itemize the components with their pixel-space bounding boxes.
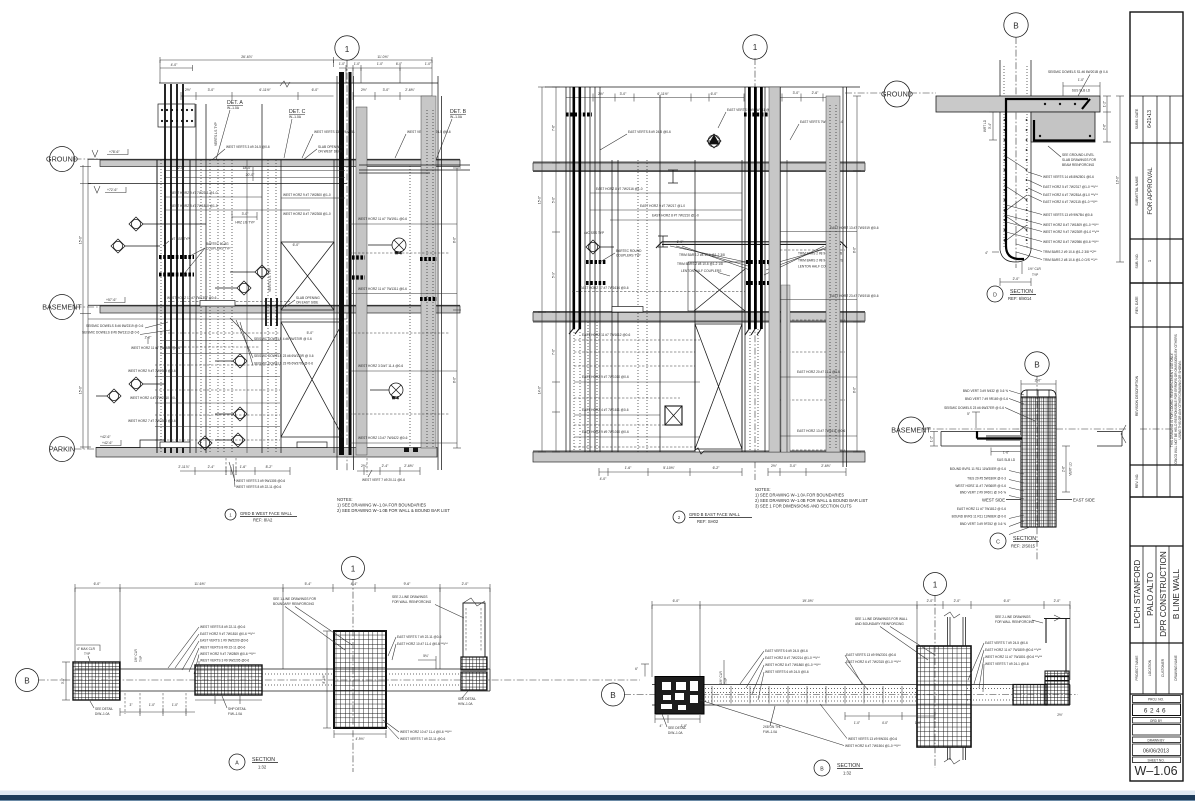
svg-text:2'-0": 2'-0" xyxy=(462,582,470,586)
svg-text:WEST HORZ 11 #7 7W1801 @0-6 *: WEST HORZ 11 #7 7W1801 @0-6 **V** xyxy=(985,655,1043,659)
svg-text:BND VERT 7 #9 9R169 @ 0-6: BND VERT 7 #9 9R169 @ 0-6 xyxy=(965,397,1008,401)
svg-text:REF: SH02: REF: SH02 xyxy=(697,519,719,524)
svg-text:WEST HORZ 11 #7 7W360R @ 0-6: WEST HORZ 11 #7 7W360R @ 0-6 xyxy=(955,484,1006,488)
svg-text:4'-4": 4'-4" xyxy=(351,582,359,586)
svg-text:BND VERT 3 #9 9/432 @ 0-6 ⅝: BND VERT 3 #9 9/432 @ 0-6 ⅝ xyxy=(963,389,1008,393)
svg-text:BARTEC ROUND: BARTEC ROUND xyxy=(616,249,642,253)
svg-text:SEE DETAIL: SEE DETAIL xyxy=(458,697,476,701)
svg-text:VERT LD: VERT LD xyxy=(1069,462,1073,476)
svg-text:7'-6": 7'-6" xyxy=(552,125,556,131)
svg-text:1'-0": 1'-0" xyxy=(854,721,860,725)
svg-text:LENTON HALF COUPLERS: LENTON HALF COUPLERS xyxy=(681,269,721,273)
svg-text:WEST VERT 7 #9 20-11 @0-6: WEST VERT 7 #9 20-11 @0-6 xyxy=(362,478,405,482)
svg-text:6•21•13: 6•21•13 xyxy=(1147,110,1153,128)
svg-text:2) SEE DRAWING W–1.0B FOR WALL: 2) SEE DRAWING W–1.0B FOR WALL & BOUND B… xyxy=(755,498,868,503)
svg-text:SEISMIC DOWELS 23 #6 6W170R @: SEISMIC DOWELS 23 #6 6W170R @ 0-6 xyxy=(254,354,314,358)
svg-text:1) SEE DRAWING W–1.0A FOR BOUN: 1) SEE DRAWING W–1.0A FOR BOUNDARIES xyxy=(337,503,426,508)
svg-text:HRZ LIS TYP: HRZ LIS TYP xyxy=(235,221,254,225)
svg-text:1'-6": 1'-6" xyxy=(240,465,248,469)
svg-text:TYP: TYP xyxy=(84,652,90,656)
svg-text:B: B xyxy=(1013,22,1019,31)
svg-text:WEST VERTS 8 #9 22-11 @0-6: WEST VERTS 8 #9 22-11 @0-6 xyxy=(236,485,281,489)
svg-text:W–1.0A: W–1.0A xyxy=(450,115,463,119)
svg-text:2) SEE DRAWING W–1.0B FOR WALL: 2) SEE DRAWING W–1.0B FOR WALL & BOUND B… xyxy=(337,508,450,513)
svg-text:TYP: TYP xyxy=(139,656,143,662)
svg-text:BND VERT 2 #9 9F601 @ 0-6 ⅝: BND VERT 2 #9 9F601 @ 0-6 ⅝ xyxy=(960,491,1007,495)
svg-text:6": 6" xyxy=(635,667,638,671)
svg-text:DRAWN BY: DRAWN BY xyxy=(1147,738,1165,742)
svg-text:2'-6⅝": 2'-6⅝" xyxy=(821,464,831,468)
svg-text:SEISMIC DOWELS 23 #6 6W3709 @: SEISMIC DOWELS 23 #6 6W3709 @ 0-6 xyxy=(254,362,313,366)
svg-text:SEE 1-LINE DRAWINGS FOR: SEE 1-LINE DRAWINGS FOR xyxy=(273,597,317,601)
svg-text:6'-11½": 6'-11½" xyxy=(259,88,271,92)
svg-text:EAST VERTS 13 #9 9W2301 @0-6: EAST VERTS 13 #9 9W2301 @0-6 xyxy=(846,653,896,657)
svg-text:WEST HORZ 10 #7 11-4 @0-6 **V: WEST HORZ 10 #7 11-4 @0-6 **V** xyxy=(400,730,452,734)
svg-text:15'-0": 15'-0" xyxy=(79,236,83,244)
svg-text:SEE 2-LINE DRAWINGS: SEE 2-LINE DRAWINGS xyxy=(995,615,1030,619)
svg-text:1'-0": 1'-0" xyxy=(377,62,383,66)
svg-text:COUPLERS TYP: COUPLERS TYP xyxy=(206,247,231,251)
svg-text:EAST HORZ 11 #7 7W1812 @ 0-6: EAST HORZ 11 #7 7W1812 @ 0-6 xyxy=(957,507,1006,511)
svg-text:2'-0": 2'-0" xyxy=(1035,379,1043,383)
svg-text:WEST VERTS 8 #9 22-11 @0-6: WEST VERTS 8 #9 22-11 @0-6 xyxy=(200,646,245,650)
svg-text:SEISMIC DOWELS 8 #6 6W2319 @ 0: SEISMIC DOWELS 8 #6 6W2319 @ 0-6 xyxy=(86,324,143,328)
svg-text:EAST VERTS 1 #9 9W2209 @0-6: EAST VERTS 1 #9 9W2209 @0-6 xyxy=(200,639,249,643)
svg-text:W–4: W–4 xyxy=(395,251,402,255)
svg-text:SEISMIC DOWELS 23 #6 6W37ER @: SEISMIC DOWELS 23 #6 6W37ER @ 0-6 xyxy=(944,406,1004,410)
svg-text:14'-0": 14'-0" xyxy=(538,386,542,394)
svg-text:1'-6": 1'-6" xyxy=(681,724,687,728)
svg-text:BARTEC 60-8G: BARTEC 60-8G xyxy=(206,242,229,246)
svg-text:6'-11½": 6'-11½" xyxy=(657,92,669,96)
svg-text:WEST HORZ 17 #7 7W1307 @0-6: WEST HORZ 17 #7 7W1307 @0-6 xyxy=(167,296,217,300)
svg-text:5": 5" xyxy=(967,412,970,416)
svg-text:2'-6⅝": 2'-6⅝" xyxy=(404,464,414,468)
svg-text:6'-0": 6'-0" xyxy=(711,92,719,96)
svg-text:W–4: W–4 xyxy=(392,396,399,400)
svg-text:+78'-6": +78'-6" xyxy=(109,150,120,154)
svg-text:EAST HORZ 10 #7 11-4 @0-6 **V: EAST HORZ 10 #7 11-4 @0-6 **V** xyxy=(397,642,449,646)
svg-text:2½": 2½" xyxy=(598,92,605,96)
svg-text:WEST VERTS 14 #8 8W2801 @0-6: WEST VERTS 14 #8 8W2801 @0-6 xyxy=(1043,175,1094,179)
svg-text:9'-6": 9'-6" xyxy=(404,582,412,586)
svg-text:A: A xyxy=(235,761,239,767)
svg-text:1'-0": 1'-0" xyxy=(354,62,360,66)
svg-text:WEST HORZ 11 #7 7W3608 @0-6: WEST HORZ 11 #7 7W3608 @0-6 xyxy=(131,346,180,350)
svg-text:1: 1 xyxy=(345,45,350,54)
svg-text:SECTION: SECTION xyxy=(252,757,275,763)
svg-text:WEST VERTS 6 #9 24-5 @0-6: WEST VERTS 6 #9 24-5 @0-6 xyxy=(765,670,809,674)
svg-text:WEST HORZ 11 #7 7W1311 @0-6: WEST HORZ 11 #7 7W1311 @0-6 xyxy=(358,287,407,291)
svg-text:+42'-6": +42'-6" xyxy=(100,435,111,439)
svg-text:GROUND: GROUND xyxy=(46,155,78,164)
svg-text:TIES 29 #5 5W180R @ 0-3: TIES 29 #5 5W180R @ 0-3 xyxy=(967,477,1006,481)
svg-text:1'-0": 1'-0" xyxy=(1078,78,1084,82)
svg-text:BOUND BVR3 11 R11 11W8ER @ 0-6: BOUND BVR3 11 R11 11W8ER @ 0-6 xyxy=(952,515,1007,519)
svg-text:REV. NO.: REV. NO. xyxy=(1135,474,1139,489)
svg-text:5'-4": 5'-4" xyxy=(305,582,313,586)
svg-text:EAST HORZ 8 #7 7W2210 @1-0: EAST HORZ 8 #7 7W2210 @1-0 xyxy=(652,214,699,218)
svg-text:ORD BY: ORD BY xyxy=(1150,719,1163,723)
svg-text:BOUNDARY REINFORCING: BOUNDARY REINFORCING xyxy=(273,602,315,606)
svg-text:2'-0": 2'-0" xyxy=(954,599,962,603)
svg-text:1: 1 xyxy=(753,43,758,52)
svg-text:2⅝": 2⅝" xyxy=(361,464,368,468)
svg-text:1'-0": 1'-0" xyxy=(339,62,345,66)
svg-text:3'-0": 3'-0" xyxy=(790,464,798,468)
svg-text:TYP: TYP xyxy=(1032,273,1038,277)
svg-text:WEST HORZ 13 #7 7W1622 @0-6: WEST HORZ 13 #7 7W1622 @0-6 xyxy=(358,436,408,440)
svg-text:WEST VERTS 7 #9 22-11 @0-6: WEST VERTS 7 #9 22-11 @0-6 xyxy=(400,737,445,741)
svg-text:WEST VERTS 13 #9 9W7B4 @0-6: WEST VERTS 13 #9 9W7B4 @0-6 xyxy=(1043,213,1093,217)
svg-text:USING THIS OR ANY OTHER DRAWIN: USING THIS OR ANY OTHER DRAWING OR SHOWN… xyxy=(1178,360,1182,439)
svg-text:15'-0": 15'-0" xyxy=(538,196,542,204)
svg-text:+42'-6": +42'-6" xyxy=(102,441,113,445)
svg-text:BASEMENT: BASEMENT xyxy=(891,426,931,435)
svg-text:SUBMITTAL NAME: SUBMITTAL NAME xyxy=(1135,176,1139,206)
svg-text:WEST HORZ 11 #7 7W191L @0-6: WEST HORZ 11 #7 7W191L @0-6 xyxy=(358,217,407,221)
svg-text:B: B xyxy=(1034,361,1040,370)
svg-text:3'-4": 3'-4" xyxy=(988,123,992,129)
svg-text:F/W–1.0A: F/W–1.0A xyxy=(228,712,243,716)
svg-text:EAST HORZ 13 #7 7W1611 @0-6: EAST HORZ 13 #7 7W1611 @0-6 xyxy=(797,429,846,433)
svg-text:1'-2": 1'-2" xyxy=(930,436,934,442)
svg-text:EAST HORZ 8 #7 7W2116 @1-0: EAST HORZ 8 #7 7W2116 @1-0 xyxy=(596,187,643,191)
svg-text:18'-0": 18'-0" xyxy=(243,166,252,170)
svg-text:W–1.0A: W–1.0A xyxy=(227,106,240,110)
svg-text:2'-4": 2'-4" xyxy=(208,465,216,469)
svg-text:2'-0": 2'-0" xyxy=(145,336,153,340)
svg-text:WEST HORZ 8 #7 7W2308 @1-0: WEST HORZ 8 #7 7W2308 @1-0 xyxy=(283,212,331,216)
svg-text:WEST HORZ 9 #7 7W2800 @1-0: WEST HORZ 9 #7 7W2800 @1-0 xyxy=(283,193,331,197)
svg-text:DRAWING NAME: DRAWING NAME xyxy=(1174,655,1178,680)
svg-text:EAST VERTS 7 #9 24-5 @0-6: EAST VERTS 7 #9 24-5 @0-6 xyxy=(985,641,1028,645)
svg-text:1½" CLR: 1½" CLR xyxy=(719,670,723,684)
svg-text:4": 4" xyxy=(985,251,988,255)
svg-text:EAST VERTS 7 #9 22-11 @0-6: EAST VERTS 7 #9 22-11 @0-6 xyxy=(397,635,442,639)
svg-text:PROJ. NO.: PROJ. NO. xyxy=(1148,698,1164,702)
svg-text:SHP DETAIL: SHP DETAIL xyxy=(228,707,247,711)
svg-text:8'-0": 8'-0" xyxy=(853,247,857,253)
svg-text:WEST HORZ 9 #7 7W2309 @0-6: WEST HORZ 9 #7 7W2309 @0-6 xyxy=(128,369,176,373)
svg-text:SLAB OPENING: SLAB OPENING xyxy=(318,145,342,149)
svg-text:2'-11⅞": 2'-11⅞" xyxy=(178,465,190,469)
svg-text:13'-0": 13'-0" xyxy=(1116,176,1120,184)
svg-text:6'-0": 6'-0" xyxy=(1004,599,1012,603)
svg-text:EAST HORZ 9 #7 7W217 @1-0: EAST HORZ 9 #7 7W217 @1-0 xyxy=(640,204,685,208)
svg-text:1'-6": 1'-6" xyxy=(625,466,633,470)
svg-text:WEST HORZ 3 D/#7 11-4 @0-6: WEST HORZ 3 D/#7 11-4 @0-6 xyxy=(358,364,403,368)
svg-text:DPR CONSTRUCTION: DPR CONSTRUCTION xyxy=(1159,551,1168,637)
svg-text:TRIM BARS 2 #8 10-6 @1-2 1/8: TRIM BARS 2 #8 10-6 @1-2 1/8 xyxy=(677,262,723,266)
svg-text:1:32: 1:32 xyxy=(258,765,267,770)
svg-text:1½" CLR: 1½" CLR xyxy=(1028,267,1042,271)
svg-text:EAST HORZ 9 #9 7W1010 @0-6: EAST HORZ 9 #9 7W1010 @0-6 xyxy=(582,430,629,434)
svg-text:EAST HORZ 23 #7 7W1918 @0-6: EAST HORZ 23 #7 7W1918 @0-6 xyxy=(830,294,879,298)
svg-text:8'-1½": 8'-1½" xyxy=(322,674,326,683)
svg-text:TRIM BARS 2 #9 10-6 @1-2 3/8 *: TRIM BARS 2 #9 10-6 @1-2 3/8 **2** xyxy=(1043,250,1097,254)
svg-text:SLAB DRAWINGS FOR: SLAB DRAWINGS FOR xyxy=(1062,158,1097,162)
svg-text:EAST SIDE: EAST SIDE xyxy=(1073,498,1095,503)
svg-text:B LINE WALL: B LINE WALL xyxy=(1172,568,1181,619)
svg-text:WEST VERTS 7 #9 24-1 @0-6: WEST VERTS 7 #9 24-1 @0-6 xyxy=(985,662,1029,666)
svg-text:WEST HORZ 8 #7 7W1809 @1-0 **V: WEST HORZ 8 #7 7W1809 @1-0 **V** xyxy=(1043,223,1099,227)
svg-text:GROUND: GROUND xyxy=(881,90,913,99)
svg-text:D: D xyxy=(993,293,997,299)
svg-text:D/W–1.0A: D/W–1.0A xyxy=(95,712,110,716)
svg-text:SHEET NO.: SHEET NO. xyxy=(1147,758,1164,762)
svg-text:4'-0": 4'-0" xyxy=(600,477,608,481)
svg-text:WEST HORZ 4 #7 7W2310 @0-6: WEST HORZ 4 #7 7W2310 @0-6 xyxy=(130,396,178,400)
svg-text:EAST HORZ 9 #7 7W1810 @0-6 **: EAST HORZ 9 #7 7W1810 @0-6 **V** xyxy=(200,632,255,636)
svg-text:REVISION DESCRIPTION: REVISION DESCRIPTION xyxy=(1135,375,1139,416)
svg-text:6'-2": 6'-2" xyxy=(713,466,721,470)
svg-text:5'-0": 5'-0" xyxy=(552,197,556,203)
svg-text:EAST HORZ 11 #7 7W1612 @0-6: EAST HORZ 11 #7 7W1612 @0-6 xyxy=(582,333,631,337)
svg-text:2'-0": 2'-0" xyxy=(178,166,186,170)
svg-text:WEST HORZ 9 #7 7W2311 @1-0: WEST HORZ 9 #7 7W2311 @1-0 xyxy=(170,191,218,195)
svg-text:6'-0": 6'-0" xyxy=(673,599,681,603)
svg-text:SECTION: SECTION xyxy=(1010,289,1033,295)
svg-text:4": 4" xyxy=(660,724,663,728)
svg-text:REF: 2/S015: REF: 2/S015 xyxy=(1011,544,1036,549)
svg-text:2'-4": 2'-4" xyxy=(382,464,390,468)
svg-text:F/W–1.0A: F/W–1.0A xyxy=(763,730,778,734)
svg-text:2'-6": 2'-6" xyxy=(1062,466,1066,472)
svg-text:EAST HORZ 11 #7 7W1809 @0-6 *: EAST HORZ 11 #7 7W1809 @0-6 **V** xyxy=(985,648,1042,652)
svg-text:3'-0": 3'-0" xyxy=(620,92,628,96)
svg-text:2½": 2½" xyxy=(361,88,368,92)
svg-text:SEISMIC DOWELS 8 #6 6W1313 @ 0: SEISMIC DOWELS 8 #6 6W1313 @ 0-6 xyxy=(82,331,139,335)
svg-text:5¾": 5¾" xyxy=(423,654,429,658)
svg-text:6'-0": 6'-0" xyxy=(94,582,102,586)
svg-text:W–1.0A: W–1.0A xyxy=(289,115,302,119)
svg-text:1) SEE DRAWING W–1.0A FOR BOUN: 1) SEE DRAWING W–1.0A FOR BOUNDARIES xyxy=(755,493,844,498)
svg-text:1'-0": 1'-0" xyxy=(915,721,921,725)
svg-text:NOTES:: NOTES: xyxy=(337,497,353,502)
svg-text:06/06/2013: 06/06/2013 xyxy=(1143,749,1169,755)
svg-text:+57'-6": +57'-6" xyxy=(106,298,117,302)
svg-text:4'-0": 4'-0" xyxy=(171,63,179,67)
svg-text:SUS SLB LD: SUS SLB LD xyxy=(1072,89,1091,93)
svg-text:WEST VERTS 3 #9 24-5 @0-6: WEST VERTS 3 #9 24-5 @0-6 xyxy=(226,145,270,149)
svg-text:NOTES:: NOTES: xyxy=(755,487,771,492)
svg-text:WEST VERTS 3 #9 9W1305 @0-6: WEST VERTS 3 #9 9W1305 @0-6 xyxy=(236,479,285,483)
svg-text:GRID B WEST FACE WALL: GRID B WEST FACE WALL xyxy=(240,511,293,516)
svg-text:ON WEST DECK: ON WEST DECK xyxy=(318,150,343,154)
svg-text:5'-9": 5'-9" xyxy=(552,272,556,278)
svg-text:11'-6⅝": 11'-6⅝" xyxy=(194,582,206,586)
svg-text:EAST HORZ 5 #7 7W2317 @1-0 **V: EAST HORZ 5 #7 7W2317 @1-0 **V** xyxy=(1043,185,1098,189)
svg-text:EAST HORZ 4 #7 7W1611 @0-6: EAST HORZ 4 #7 7W1611 @0-6 xyxy=(582,408,629,412)
svg-text:WEST HORZ 7 #7 7W2300 @0-6: WEST HORZ 7 #7 7W2300 @0-6 xyxy=(128,419,176,423)
svg-text:SUB. NO.: SUB. NO. xyxy=(1135,254,1139,269)
svg-text:2'-6": 2'-6" xyxy=(1103,124,1107,130)
svg-text:WEST HORZ 6 #7 7W1504 @1-0 **: WEST HORZ 6 #7 7W1504 @1-0 **V** xyxy=(845,744,901,748)
svg-text:6'-0": 6'-0" xyxy=(293,243,301,247)
svg-text:REF: 6/8014: REF: 6/8014 xyxy=(1008,296,1032,301)
svg-text:6'-0": 6'-0" xyxy=(396,62,402,66)
svg-text:B: B xyxy=(24,677,30,686)
svg-text:2½": 2½" xyxy=(771,464,778,468)
svg-text:FOR WALL REINFORCING: FOR WALL REINFORCING xyxy=(995,620,1035,624)
svg-text:SEE GROUND LEVEL: SEE GROUND LEVEL xyxy=(1062,153,1094,157)
svg-text:PALO ALTO: PALO ALTO xyxy=(1146,572,1155,616)
svg-text:1'-0": 1'-0" xyxy=(172,703,178,707)
svg-text:SEE DETAIL: SEE DETAIL xyxy=(95,707,113,711)
svg-text:6'-0": 6'-0" xyxy=(677,240,685,244)
svg-text:AND BOUNDARY REINFORCING: AND BOUNDARY REINFORCING xyxy=(855,622,904,626)
svg-text:6246: 6246 xyxy=(1144,708,1168,715)
svg-text:EAST HORZ 6 #7 7W2115 @1-0 **V: EAST HORZ 6 #7 7W2115 @1-0 **V** xyxy=(1043,200,1098,204)
svg-text:3": 3" xyxy=(130,703,133,707)
svg-text:20'-0": 20'-0" xyxy=(246,173,255,177)
svg-text:WEST HORZ 8 #7 7W1860 @1-0 **: WEST HORZ 8 #7 7W1860 @1-0 **V** xyxy=(765,663,821,667)
svg-text:FOR APPROVAL: FOR APPROVAL xyxy=(1147,167,1154,215)
svg-text:3) SEE 1 FOR DIMENSIONS AND SE: 3) SEE 1 FOR DIMENSIONS AND SECTION CUTS xyxy=(755,504,852,509)
svg-text:4#C SSS TYP: 4#C SSS TYP xyxy=(584,231,604,235)
svg-text:TRIM BARS 2 #8 10-6 @1-2 3/8: TRIM BARS 2 #8 10-6 @1-2 3/8 xyxy=(679,253,725,257)
svg-text:EAST HORZ 6 #7 7W281A @1-0 **V: EAST HORZ 6 #7 7W281A @1-0 **V** xyxy=(1043,193,1099,197)
svg-text:3'-0": 3'-0" xyxy=(208,88,216,92)
svg-text:SUS SLB LD: SUS SLB LD xyxy=(997,458,1016,462)
svg-text:4#7 SSS TYP: 4#7 SSS TYP xyxy=(170,237,190,241)
svg-text:LPCH STANFORD: LPCH STANFORD xyxy=(1133,560,1142,629)
svg-text:SECTION: SECTION xyxy=(837,763,860,769)
svg-text:BND VERT 3 #9 9F252 @ 0-6 ⅝: BND VERT 3 #9 9F252 @ 0-6 ⅝ xyxy=(960,522,1007,526)
svg-text:1'-6": 1'-6" xyxy=(1003,451,1009,455)
svg-text:SEE 1-LINE DRAWINGS FOR WALL: SEE 1-LINE DRAWINGS FOR WALL xyxy=(855,617,908,621)
svg-text:2'-0": 2'-0" xyxy=(927,599,935,603)
svg-text:1'-2": 1'-2" xyxy=(1103,101,1107,107)
svg-text:26'-6⅞": 26'-6⅞" xyxy=(241,55,253,59)
svg-text:2½": 2½" xyxy=(1057,713,1063,717)
svg-text:BOUND BVR1 11 R11 11W30ER @ 0-: BOUND BVR1 11 R11 11W30ER @ 0-6 xyxy=(950,467,1006,471)
svg-text:8'-0": 8'-0" xyxy=(453,237,457,243)
svg-text:1:32: 1:32 xyxy=(843,771,852,776)
svg-text:EAST HORZ 17 #7 7W1614 @0-6: EAST HORZ 17 #7 7W1614 @0-6 xyxy=(580,286,629,290)
svg-text:2X8 ON THL: 2X8 ON THL xyxy=(763,725,781,729)
svg-text:CUSTOMER: CUSTOMER xyxy=(1161,658,1165,677)
svg-text:ON EAST SIDE: ON EAST SIDE xyxy=(296,301,318,305)
svg-text:5'-0": 5'-0" xyxy=(307,331,315,335)
svg-text:2'-6⅝": 2'-6⅝" xyxy=(405,88,415,92)
svg-text:EAST HORZ 8 #7 7W2214 @1-0 **: EAST HORZ 8 #7 7W2214 @1-0 **V** xyxy=(765,656,820,660)
svg-text:19'-0⅝": 19'-0⅝" xyxy=(802,599,814,603)
svg-text:1: 1 xyxy=(933,581,938,590)
svg-text:3'-0": 3'-0" xyxy=(61,678,65,684)
svg-text:EAST HORZ 6 #7 7W2315 @1-0 **: EAST HORZ 6 #7 7W2315 @1-0 **V** xyxy=(846,660,901,664)
svg-text:6'-0": 6'-0" xyxy=(312,88,320,92)
svg-text:SUBM. DATE: SUBM. DATE xyxy=(1135,108,1139,129)
svg-text:WEST HORZ 8 #7 7W2986 @0-6 **V: WEST HORZ 8 #7 7W2986 @0-6 **V** xyxy=(1043,240,1099,244)
svg-text:FOR WALL REINFORCING: FOR WALL REINFORCING xyxy=(392,600,432,604)
svg-text:WEST VERTS 8 #9 22-11 @0-6: WEST VERTS 8 #9 22-11 @0-6 xyxy=(200,625,245,629)
svg-text:TYP: TYP xyxy=(724,678,728,684)
svg-text:1: 1 xyxy=(351,565,356,574)
svg-text:3'-0": 3'-0" xyxy=(383,88,391,92)
svg-text:2'-0": 2'-0" xyxy=(1054,599,1062,603)
svg-text:REV. DATE: REV. DATE xyxy=(1135,296,1139,314)
svg-text:7'-0": 7'-0" xyxy=(552,349,556,355)
svg-text:11'-0⅜": 11'-0⅜" xyxy=(377,55,389,59)
svg-text:SEISMIC DOWELS S1 #6 6W201B @: SEISMIC DOWELS S1 #6 6W201B @ 0-6 xyxy=(1048,70,1108,74)
svg-text:5'-10⅜": 5'-10⅜" xyxy=(663,466,675,470)
svg-text:+72'-6": +72'-6" xyxy=(107,188,118,192)
svg-text:WEST HORZ 9 #7 7W230R @1-0 **V: WEST HORZ 9 #7 7W230R @1-0 **V** xyxy=(1043,230,1100,234)
svg-text:TRIM BARS 2 #8 10-6 @1-0 O/S *: TRIM BARS 2 #8 10-6 @1-0 O/S **1** xyxy=(1043,258,1098,262)
svg-text:EAST HORZ 9 #7 7W1010 @0-6: EAST HORZ 9 #7 7W1010 @0-6 xyxy=(582,375,629,379)
svg-text:1'-0": 1'-0" xyxy=(149,703,155,707)
svg-text:B: B xyxy=(610,691,616,700)
svg-text:WEST SIDE: WEST SIDE xyxy=(982,498,1005,503)
svg-text:1½" CLR: 1½" CLR xyxy=(134,648,138,662)
svg-text:EAST HORZ 20 #7 11-4 @0-6: EAST HORZ 20 #7 11-4 @0-6 xyxy=(797,370,840,374)
svg-text:SEE 2-LINE DRAWINGS: SEE 2-LINE DRAWINGS xyxy=(392,595,427,599)
svg-text:REF: 8/A2: REF: 8/A2 xyxy=(253,518,273,523)
svg-text:4'-9⅛": 4'-9⅛" xyxy=(355,737,364,741)
svg-text:8'-2": 8'-2" xyxy=(266,465,274,469)
svg-text:VERTS LS TYP: VERTS LS TYP xyxy=(214,121,218,146)
svg-text:3'-0": 3'-0" xyxy=(793,91,801,95)
svg-text:COUPLERS TYP: COUPLERS TYP xyxy=(616,254,641,258)
svg-text:4" MAX CLR: 4" MAX CLR xyxy=(77,647,96,651)
svg-text:WEST HORZ 8 #7 7W1810 @1-0: WEST HORZ 8 #7 7W1810 @1-0 xyxy=(170,204,218,208)
svg-text:C: C xyxy=(996,540,1000,546)
svg-text:WRT LD: WRT LD xyxy=(983,119,987,132)
svg-text:15'-0": 15'-0" xyxy=(79,386,83,394)
svg-text:B: B xyxy=(820,767,824,773)
svg-text:EAST VERTS 6 #9 24-5 @0-6: EAST VERTS 6 #9 24-5 @0-6 xyxy=(765,649,808,653)
svg-text:PROJECT NAME: PROJECT NAME xyxy=(1135,656,1139,681)
svg-text:EAST HORZ 13 #7 7W1919 @0-6: EAST HORZ 13 #7 7W1919 @0-6 xyxy=(830,226,879,230)
svg-text:WEST VERTS 13 #9 9W301 @0-6: WEST VERTS 13 #9 9W301 @0-6 xyxy=(848,737,897,741)
svg-text:8'-0": 8'-0" xyxy=(853,387,857,393)
svg-text:PARKIN: PARKIN xyxy=(49,445,75,454)
svg-text:2'-6": 2'-6" xyxy=(812,91,820,95)
svg-text:GRID B EAST FACE WALL: GRID B EAST FACE WALL xyxy=(689,512,741,517)
svg-text:3'-0": 3'-0" xyxy=(242,212,250,216)
svg-text:EAST VERTS 8 #9 24-5 @0-6: EAST VERTS 8 #9 24-5 @0-6 xyxy=(628,130,671,134)
svg-text:WEST HORZ 9 #7 7W2809 @0-6 **: WEST HORZ 9 #7 7W2809 @0-6 **V** xyxy=(200,652,256,656)
svg-text:LOCATION: LOCATION xyxy=(1148,659,1152,676)
svg-text:SLAB OPENING: SLAB OPENING xyxy=(296,296,320,300)
svg-text:8'-0": 8'-0" xyxy=(453,377,457,383)
svg-text:WEST VERTS 3 #9 9W2205 @0-6: WEST VERTS 3 #9 9W2205 @0-6 xyxy=(200,659,249,663)
svg-text:SECTION: SECTION xyxy=(1013,536,1036,542)
svg-text:W–1.06: W–1.06 xyxy=(1134,764,1177,778)
svg-text:H/W–1.0A: H/W–1.0A xyxy=(458,702,473,706)
svg-text:BEAM REINFORCING: BEAM REINFORCING xyxy=(1062,163,1095,167)
svg-text:2'-0": 2'-0" xyxy=(1013,277,1021,281)
svg-text:4'-0": 4'-0" xyxy=(882,721,888,725)
svg-text:D/W–1.0A: D/W–1.0A xyxy=(668,731,683,735)
svg-text:1'-0": 1'-0" xyxy=(425,62,431,66)
svg-text:2½": 2½" xyxy=(185,88,192,92)
